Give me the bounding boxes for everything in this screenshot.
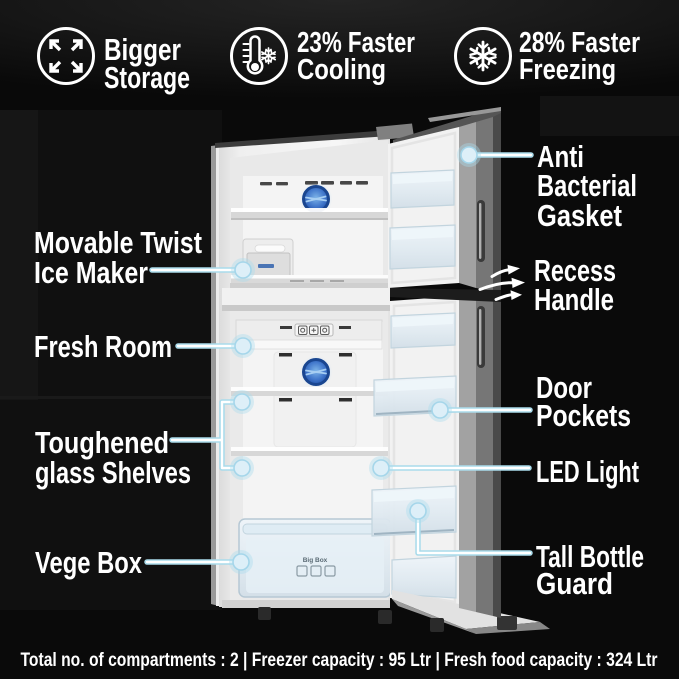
svg-text:Freezing: Freezing: [519, 54, 616, 86]
svg-text:Handle: Handle: [534, 282, 614, 317]
svg-text:Fresh Room: Fresh Room: [34, 329, 172, 364]
svg-text:Ice Maker: Ice Maker: [34, 255, 148, 290]
svg-text:Gasket: Gasket: [537, 198, 622, 233]
svg-text:Storage: Storage: [104, 60, 190, 95]
svg-text:Pockets: Pockets: [536, 398, 631, 433]
svg-text:Guard: Guard: [536, 566, 613, 601]
svg-text:Total no. of compartments : 2: Total no. of compartments : 2 | Freezer …: [21, 650, 658, 671]
svg-text:LED Light: LED Light: [536, 454, 639, 489]
svg-text:Big Box: Big Box: [303, 557, 328, 564]
svg-text:Vege Box: Vege Box: [35, 545, 143, 580]
svg-text:Cooling: Cooling: [297, 54, 386, 86]
svg-text:glass Shelves: glass Shelves: [35, 455, 191, 490]
